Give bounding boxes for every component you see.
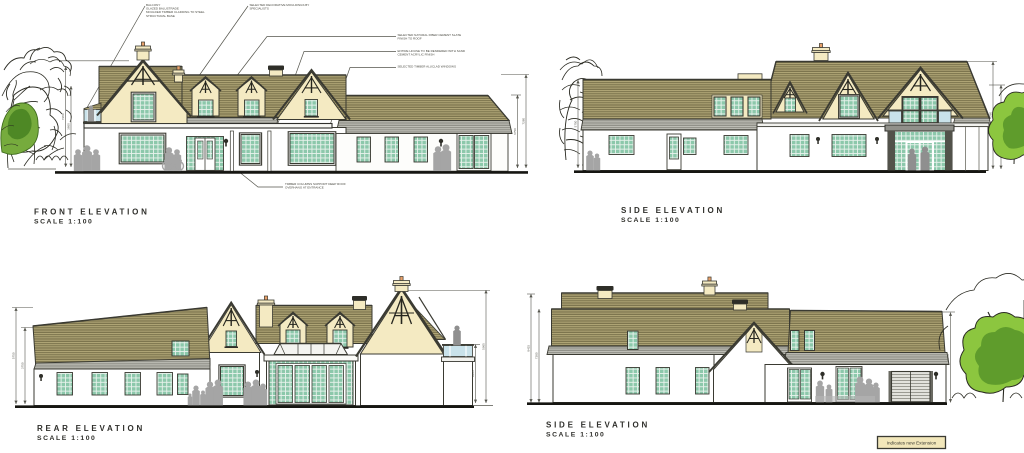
svg-text:SELECTED TIMBER ALUCLAD WINDOW: SELECTED TIMBER ALUCLAD WINDOWS <box>398 65 456 69</box>
svg-text:REAR ELEVATION: REAR ELEVATION <box>37 424 145 433</box>
svg-text:8670: 8670 <box>946 354 950 361</box>
svg-text:FRONT ELEVATION: FRONT ELEVATION <box>34 208 150 217</box>
svg-text:7280: 7280 <box>61 113 65 120</box>
svg-text:Indicates new Extension: Indicates new Extension <box>887 441 937 446</box>
svg-text:5750: 5750 <box>12 352 16 359</box>
svg-text:SCALE 1:100: SCALE 1:100 <box>546 432 605 439</box>
svg-text:3860: 3860 <box>67 123 71 130</box>
svg-text:6750: 6750 <box>513 128 517 135</box>
svg-text:SIDE ELEVATION: SIDE ELEVATION <box>621 206 725 215</box>
svg-text:7280: 7280 <box>535 352 539 359</box>
svg-text:SIDE ELEVATION: SIDE ELEVATION <box>546 421 650 430</box>
svg-text:7280: 7280 <box>989 112 993 119</box>
svg-text:5750: 5750 <box>574 120 578 127</box>
svg-text:SCALE 1:100: SCALE 1:100 <box>34 219 93 226</box>
svg-text:5965: 5965 <box>482 343 486 350</box>
svg-text:3750: 3750 <box>21 362 25 369</box>
svg-text:SCALE 1:100: SCALE 1:100 <box>621 217 680 224</box>
svg-text:SCALE 1:100: SCALE 1:100 <box>37 435 96 442</box>
svg-text:3465: 3465 <box>471 370 475 377</box>
svg-text:7280: 7280 <box>522 118 526 125</box>
svg-text:8415: 8415 <box>527 345 531 352</box>
